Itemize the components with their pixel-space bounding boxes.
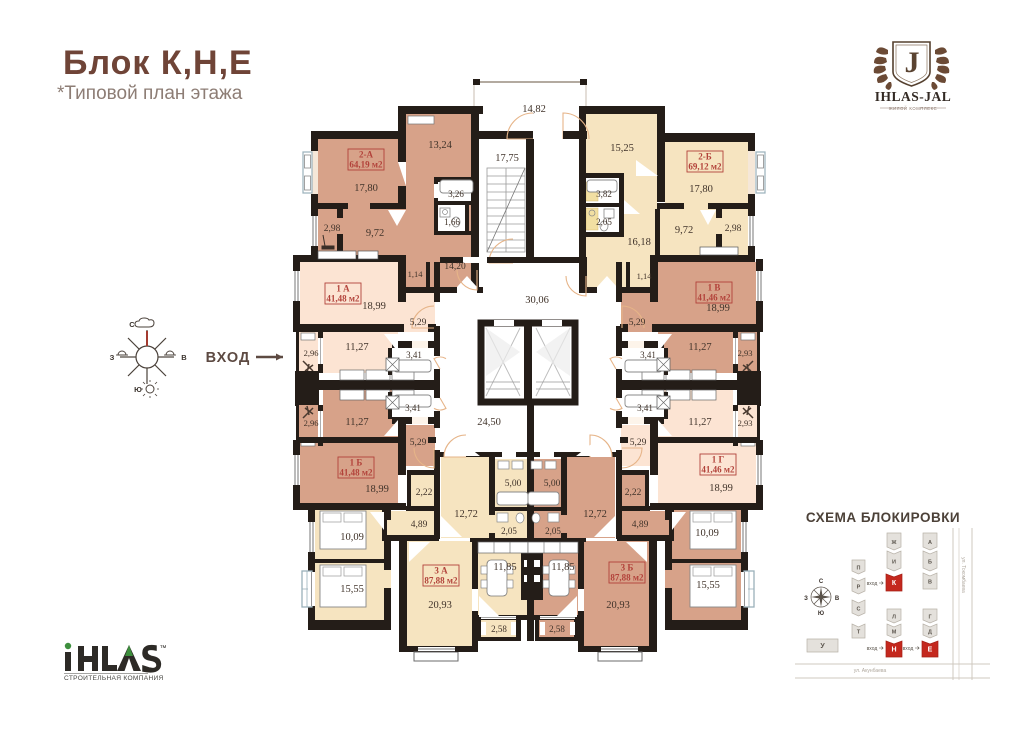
svg-text:Р: Р <box>857 585 861 591</box>
svg-text:С: С <box>857 607 861 613</box>
svg-text:9,72: 9,72 <box>366 228 384 239</box>
svg-text:Н: Н <box>891 647 896 654</box>
svg-text:вход: вход <box>867 581 878 587</box>
svg-text:17,80: 17,80 <box>354 183 378 194</box>
svg-text:13,24: 13,24 <box>428 140 452 151</box>
svg-text:ул. Акунбаева: ул. Акунбаева <box>854 668 887 674</box>
svg-text:41,46 м2: 41,46 м2 <box>697 293 731 303</box>
svg-text:Д: Д <box>928 630 932 636</box>
svg-text:ЖИЛОЙ КОМПЛЕКС: ЖИЛОЙ КОМПЛЕКС <box>889 106 938 111</box>
svg-text:3,26: 3,26 <box>448 189 464 199</box>
svg-text:20,93: 20,93 <box>428 600 452 611</box>
svg-text:11,27: 11,27 <box>345 417 368 428</box>
svg-text:2,98: 2,98 <box>324 224 341 234</box>
svg-text:30,06: 30,06 <box>525 295 549 306</box>
svg-text:17,80: 17,80 <box>689 184 713 195</box>
svg-text:И: И <box>892 560 896 566</box>
svg-text:2,22: 2,22 <box>625 488 642 498</box>
svg-text:4,89: 4,89 <box>632 520 649 530</box>
svg-text:41,48 м2: 41,48 м2 <box>339 468 373 478</box>
svg-text:3 Б: 3 Б <box>621 563 634 573</box>
svg-text:В: В <box>181 353 187 362</box>
svg-text:24,50: 24,50 <box>477 417 501 428</box>
svg-text:вход: вход <box>867 646 878 652</box>
svg-text:СХЕМА БЛОКИРОВКИ: СХЕМА БЛОКИРОВКИ <box>806 510 960 525</box>
svg-text:*Типовой план этажа: *Типовой план этажа <box>57 83 243 104</box>
svg-text:2,05: 2,05 <box>545 526 561 536</box>
svg-text:10,09: 10,09 <box>340 532 364 543</box>
svg-text:3,41: 3,41 <box>640 350 656 360</box>
svg-text:11,27: 11,27 <box>688 342 711 353</box>
svg-text:64,19 м2: 64,19 м2 <box>349 160 383 170</box>
svg-text:1 Б: 1 Б <box>350 458 363 468</box>
svg-text:10,09: 10,09 <box>695 528 719 539</box>
svg-text:18,99: 18,99 <box>365 484 389 495</box>
svg-text:™: ™ <box>160 645 167 652</box>
svg-text:вход: вход <box>903 646 914 652</box>
svg-text:17,75: 17,75 <box>495 153 519 164</box>
svg-text:2,93: 2,93 <box>738 418 753 428</box>
svg-text:16,18: 16,18 <box>627 237 651 248</box>
svg-text:41,46 м2: 41,46 м2 <box>701 465 735 475</box>
svg-text:18,99: 18,99 <box>706 303 730 314</box>
svg-text:С: С <box>819 579 824 585</box>
svg-text:Блок К,Н,Е: Блок К,Н,Е <box>63 44 253 82</box>
svg-text:1 А: 1 А <box>336 284 350 294</box>
svg-text:14,82: 14,82 <box>522 104 546 115</box>
svg-text:П: П <box>857 566 861 572</box>
svg-text:4,89: 4,89 <box>411 520 428 530</box>
svg-text:В: В <box>928 580 932 586</box>
svg-text:М: М <box>892 630 897 636</box>
svg-text:3,41: 3,41 <box>405 403 421 413</box>
svg-text:1 Г: 1 Г <box>712 455 725 465</box>
svg-text:С: С <box>129 320 135 329</box>
svg-text:18,99: 18,99 <box>709 483 733 494</box>
svg-text:2,58: 2,58 <box>491 624 507 634</box>
svg-text:2,93: 2,93 <box>738 348 753 358</box>
svg-text:У: У <box>820 643 825 650</box>
svg-text:3 А: 3 А <box>434 566 448 576</box>
svg-text:5,00: 5,00 <box>505 479 522 489</box>
svg-text:1 В: 1 В <box>708 283 721 293</box>
svg-text:2,05: 2,05 <box>596 217 612 227</box>
svg-text:15,55: 15,55 <box>696 580 720 591</box>
svg-text:69,12 м2: 69,12 м2 <box>688 162 722 172</box>
svg-text:Б: Б <box>928 560 932 566</box>
svg-text:5,00: 5,00 <box>544 479 561 489</box>
svg-text:2,05: 2,05 <box>501 526 517 536</box>
svg-text:9,72: 9,72 <box>675 225 693 236</box>
svg-text:2-Б: 2-Б <box>698 152 711 162</box>
svg-text:11,85: 11,85 <box>551 562 574 573</box>
svg-text:J: J <box>905 46 920 79</box>
svg-text:5,29: 5,29 <box>630 438 647 448</box>
svg-text:К: К <box>892 580 897 587</box>
svg-text:З: З <box>804 596 808 602</box>
svg-text:Л: Л <box>892 615 896 621</box>
svg-text:Ю: Ю <box>134 385 142 394</box>
svg-text:11,27: 11,27 <box>688 417 711 428</box>
svg-text:14,20: 14,20 <box>444 262 466 272</box>
svg-text:2,96: 2,96 <box>304 418 319 428</box>
svg-text:Е: Е <box>928 647 933 654</box>
svg-text:3,41: 3,41 <box>406 350 422 360</box>
svg-text:15,25: 15,25 <box>610 143 634 154</box>
svg-text:В: В <box>835 596 840 602</box>
svg-text:12,72: 12,72 <box>454 509 478 520</box>
svg-text:ул. Токомбаева: ул. Токомбаева <box>960 557 966 593</box>
svg-text:З: З <box>110 353 115 362</box>
svg-text:1,14: 1,14 <box>637 271 653 281</box>
svg-text:12,72: 12,72 <box>583 509 607 520</box>
svg-text:15,55: 15,55 <box>340 584 364 595</box>
svg-text:3,82: 3,82 <box>596 189 612 199</box>
svg-text:5,29: 5,29 <box>410 438 427 448</box>
svg-text:20,93: 20,93 <box>606 600 630 611</box>
svg-text:11,85: 11,85 <box>493 562 516 573</box>
svg-text:41,48 м2: 41,48 м2 <box>326 294 360 304</box>
svg-text:Ж: Ж <box>891 540 897 546</box>
svg-text:IHLAS-JAL: IHLAS-JAL <box>875 89 952 104</box>
svg-text:87,88 м2: 87,88 м2 <box>610 573 644 583</box>
svg-text:1,66: 1,66 <box>444 217 460 227</box>
svg-text:11,27: 11,27 <box>345 342 368 353</box>
svg-text:2,98: 2,98 <box>725 224 742 234</box>
svg-text:5,29: 5,29 <box>629 318 646 328</box>
svg-text:2,22: 2,22 <box>416 488 433 498</box>
svg-text:А: А <box>928 540 932 546</box>
svg-text:1,14: 1,14 <box>408 269 424 279</box>
svg-text:2,96: 2,96 <box>304 348 319 358</box>
svg-text:18,99: 18,99 <box>362 301 386 312</box>
svg-text:3,41: 3,41 <box>637 403 653 413</box>
svg-text:СТРОИТЕЛЬНАЯ КОМПАНИЯ: СТРОИТЕЛЬНАЯ КОМПАНИЯ <box>64 675 164 682</box>
svg-text:2-А: 2-А <box>359 150 373 160</box>
svg-text:Ю: Ю <box>818 611 824 617</box>
svg-text:87,88 м2: 87,88 м2 <box>424 576 458 586</box>
svg-text:5,29: 5,29 <box>410 318 427 328</box>
svg-text:2,58: 2,58 <box>549 624 565 634</box>
svg-text:ВХОД: ВХОД <box>206 350 251 366</box>
